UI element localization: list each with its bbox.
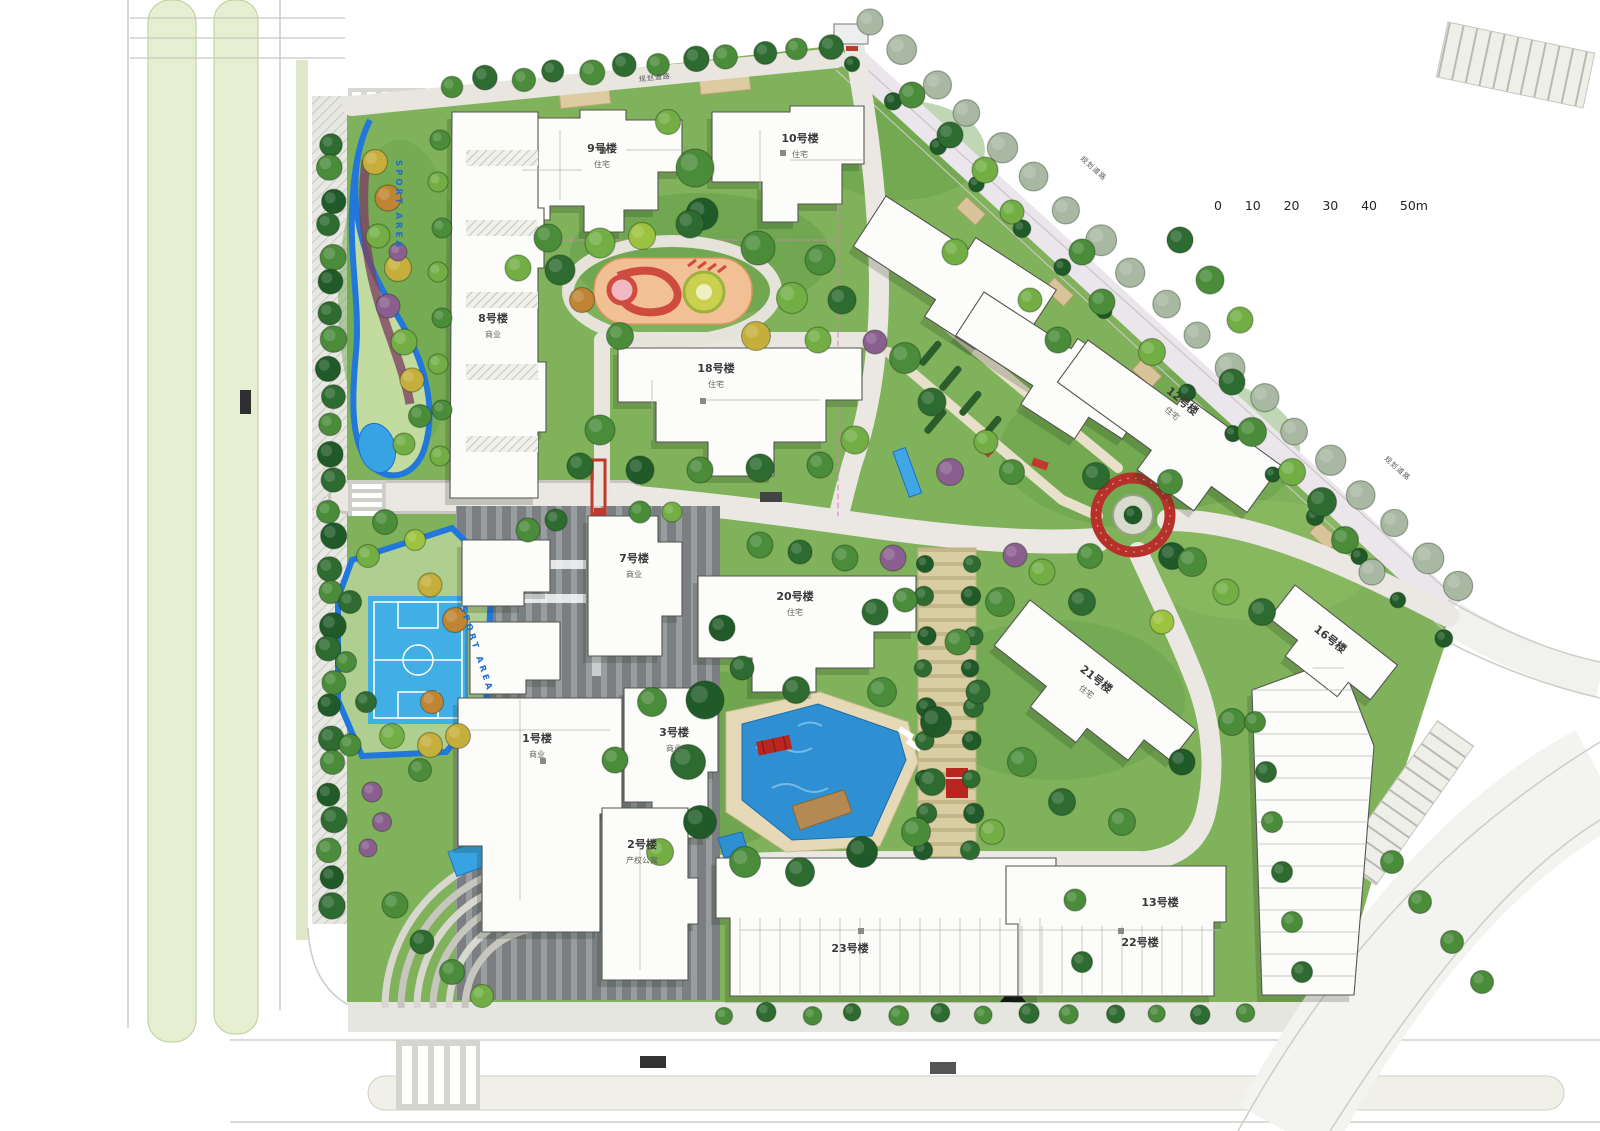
scale-tick-0: 0 xyxy=(1214,198,1222,213)
car-icon xyxy=(930,1062,956,1074)
scale-tick-40: 40 xyxy=(1361,198,1377,213)
building-sublabel-b8: 商业 xyxy=(485,329,501,339)
building-sublabel-b3: 商业 xyxy=(666,743,682,753)
building-sublabel-b20: 住宅 xyxy=(787,607,803,617)
building-sublabel-b18: 住宅 xyxy=(708,379,724,389)
crosswalk-bottom xyxy=(396,1040,480,1110)
building-label-b9: 9号楼 xyxy=(587,141,617,155)
scale-tick-50: 50m xyxy=(1400,198,1428,213)
masterplan-drawing: 9号楼住宅10号楼住宅8号楼商业18号楼住宅12号楼住宅7号楼商业20号楼住宅2… xyxy=(0,0,1600,1131)
building-label-b18: 18号楼 xyxy=(697,361,734,375)
building-sublabel-b7: 商业 xyxy=(626,569,642,579)
building-label-b1: 1号楼 xyxy=(522,731,552,745)
building-sublabel-b10: 住宅 xyxy=(792,149,808,159)
annotation-sport-area-track: SPORT AREA xyxy=(393,160,403,250)
scale-bar: 0 10 20 30 40 50m xyxy=(1214,198,1428,213)
car-icon xyxy=(760,492,782,502)
annotation-road-label-ne-2: 规划道路 xyxy=(1383,454,1413,482)
building-sublabel-b2: 产权公寓 xyxy=(626,855,658,865)
car-icon xyxy=(240,390,251,414)
annotation-road-label-ne-1: 规划道路 xyxy=(1079,154,1109,182)
scale-tick-30: 30 xyxy=(1322,198,1338,213)
building-22 xyxy=(1006,866,1226,996)
building-label-b13: 13号楼 xyxy=(1141,895,1178,909)
building-label-b22: 22号楼 xyxy=(1121,935,1158,949)
building-sublabel-b1: 商业 xyxy=(529,749,545,759)
building-label-b23: 23号楼 xyxy=(831,941,868,955)
parking-area-ne xyxy=(1436,22,1594,108)
scale-tick-20: 20 xyxy=(1284,198,1300,213)
building-label-b20: 20号楼 xyxy=(776,589,813,603)
building-label-b7: 7号楼 xyxy=(619,551,649,565)
building-label-b2: 2号楼 xyxy=(627,837,657,851)
building-2 xyxy=(602,808,698,980)
car-icon xyxy=(640,1056,666,1068)
building-label-b10: 10号楼 xyxy=(781,131,818,145)
scale-tick-10: 10 xyxy=(1245,198,1261,213)
building-label-b3: 3号楼 xyxy=(659,725,689,739)
building-23 xyxy=(716,858,1056,996)
site-plan-canvas: 9号楼住宅10号楼住宅8号楼商业18号楼住宅12号楼住宅7号楼商业20号楼住宅2… xyxy=(0,0,1600,1131)
building-sublabel-b9: 住宅 xyxy=(594,159,610,169)
building-label-b8: 8号楼 xyxy=(478,311,508,325)
